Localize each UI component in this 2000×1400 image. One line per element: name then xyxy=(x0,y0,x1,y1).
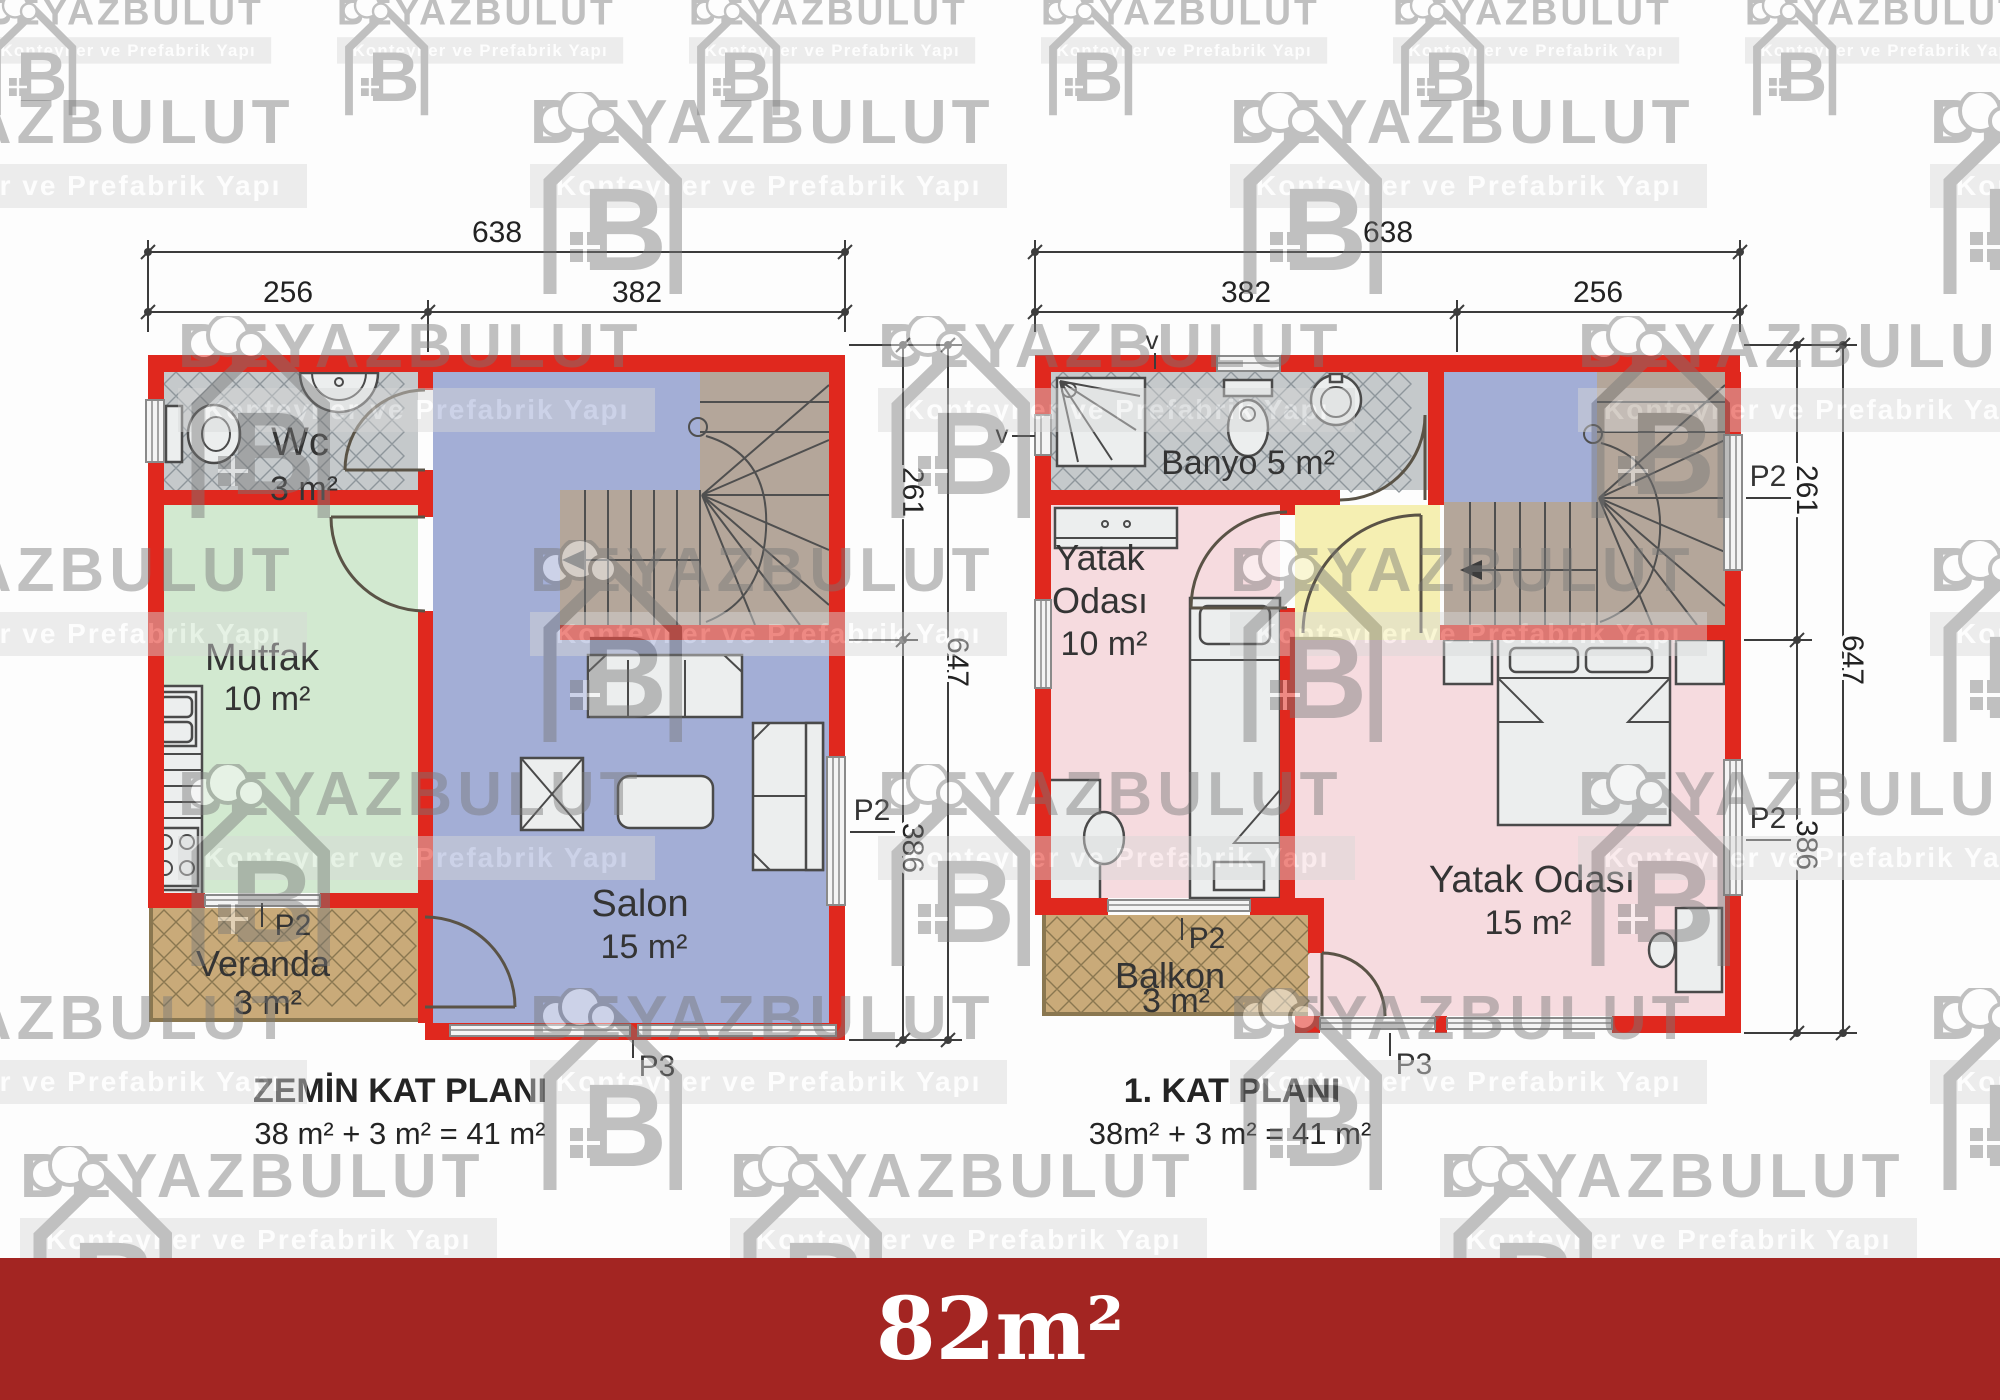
right-top-window-label: P2 xyxy=(1750,460,1787,493)
room-wc-area: 3 m² xyxy=(270,470,338,508)
dim-height-total: 647 xyxy=(941,637,974,687)
room-hall xyxy=(1295,505,1440,640)
first-plan: Banyo 5 m² Yatak Odası 10 m² Yatak Odası… xyxy=(996,216,1870,1151)
dim-width-a: 256 xyxy=(263,276,313,309)
floor-plans-drawing: Wc 3 m² Mutfak 10 m² Salon 15 m² P2 Vera… xyxy=(0,0,2000,1400)
room-kitchen-area: 10 m² xyxy=(224,680,311,718)
ground-plan-title: ZEMİN KAT PLANI xyxy=(253,1072,547,1110)
dim-width-total: 638 xyxy=(1363,216,1413,249)
total-area-label: 82m² xyxy=(876,1279,1124,1380)
sink-icon xyxy=(1311,374,1361,425)
dim-height-b: 386 xyxy=(1790,820,1823,870)
bottom-door-label: P3 xyxy=(639,1050,676,1083)
bottom-door-label: P3 xyxy=(1396,1048,1433,1081)
stairs-landing xyxy=(1444,372,1597,502)
dim-height-a: 261 xyxy=(896,467,929,517)
vent-left-label: v xyxy=(996,419,1009,449)
room-bedroom-small-line3: 10 m² xyxy=(1061,625,1148,663)
sofa-icon xyxy=(588,655,742,717)
armchair-icon xyxy=(753,723,823,870)
first-plan-title: 1. KAT PLANI xyxy=(1124,1072,1341,1110)
dim-width-b: 256 xyxy=(1573,276,1623,309)
dim-width-b: 382 xyxy=(612,276,662,309)
dim-height-a: 261 xyxy=(1790,465,1823,515)
room-bedroom-large-name: Yatak Odası xyxy=(1429,859,1635,901)
veranda-window-label: P2 xyxy=(275,909,312,942)
coffee-table-icon xyxy=(618,776,713,828)
right-window-label: P2 xyxy=(854,794,891,827)
room-veranda-area: 3 m² xyxy=(234,984,302,1022)
room-living-name: Salon xyxy=(591,883,688,925)
single-bed-icon xyxy=(1190,598,1280,898)
room-wc-name: Wc xyxy=(271,420,329,464)
room-bedroom-small-line2: Odası xyxy=(1052,580,1148,621)
floor-plan-sheet: Wc 3 m² Mutfak 10 m² Salon 15 m² P2 Vera… xyxy=(0,0,2000,1400)
side-chair-icon xyxy=(521,758,583,830)
room-bedroom-large-area: 15 m² xyxy=(1485,904,1572,942)
room-bath-name: Banyo 5 m² xyxy=(1161,444,1335,482)
dim-height-total: 647 xyxy=(1836,635,1869,685)
vent-top-label: v xyxy=(1146,325,1159,355)
room-kitchen-name: Mutfak xyxy=(205,637,320,679)
shower-icon xyxy=(1057,378,1145,466)
toilet-icon xyxy=(166,405,240,463)
balcony-window-label: P2 xyxy=(1189,922,1226,955)
dim-width-a: 382 xyxy=(1221,276,1271,309)
room-bedroom-small-line1: Yatak xyxy=(1055,537,1145,578)
dim-width-total: 638 xyxy=(472,216,522,249)
dim-height-b: 386 xyxy=(896,823,929,873)
room-veranda-name: Veranda xyxy=(196,943,331,984)
room-living-area: 15 m² xyxy=(601,928,688,966)
ground-plan: Wc 3 m² Mutfak 10 m² Salon 15 m² P2 Vera… xyxy=(141,216,974,1151)
room-balcony-area: 3 m² xyxy=(1142,982,1210,1020)
first-plan-area-equation: 38m² + 3 m² = 41 m² xyxy=(1089,1116,1372,1151)
area-banner: 82m² xyxy=(0,1258,2000,1400)
ground-plan-area-equation: 38 m² + 3 m² = 41 m² xyxy=(254,1116,545,1151)
right-bottom-window-label: P2 xyxy=(1750,802,1787,835)
